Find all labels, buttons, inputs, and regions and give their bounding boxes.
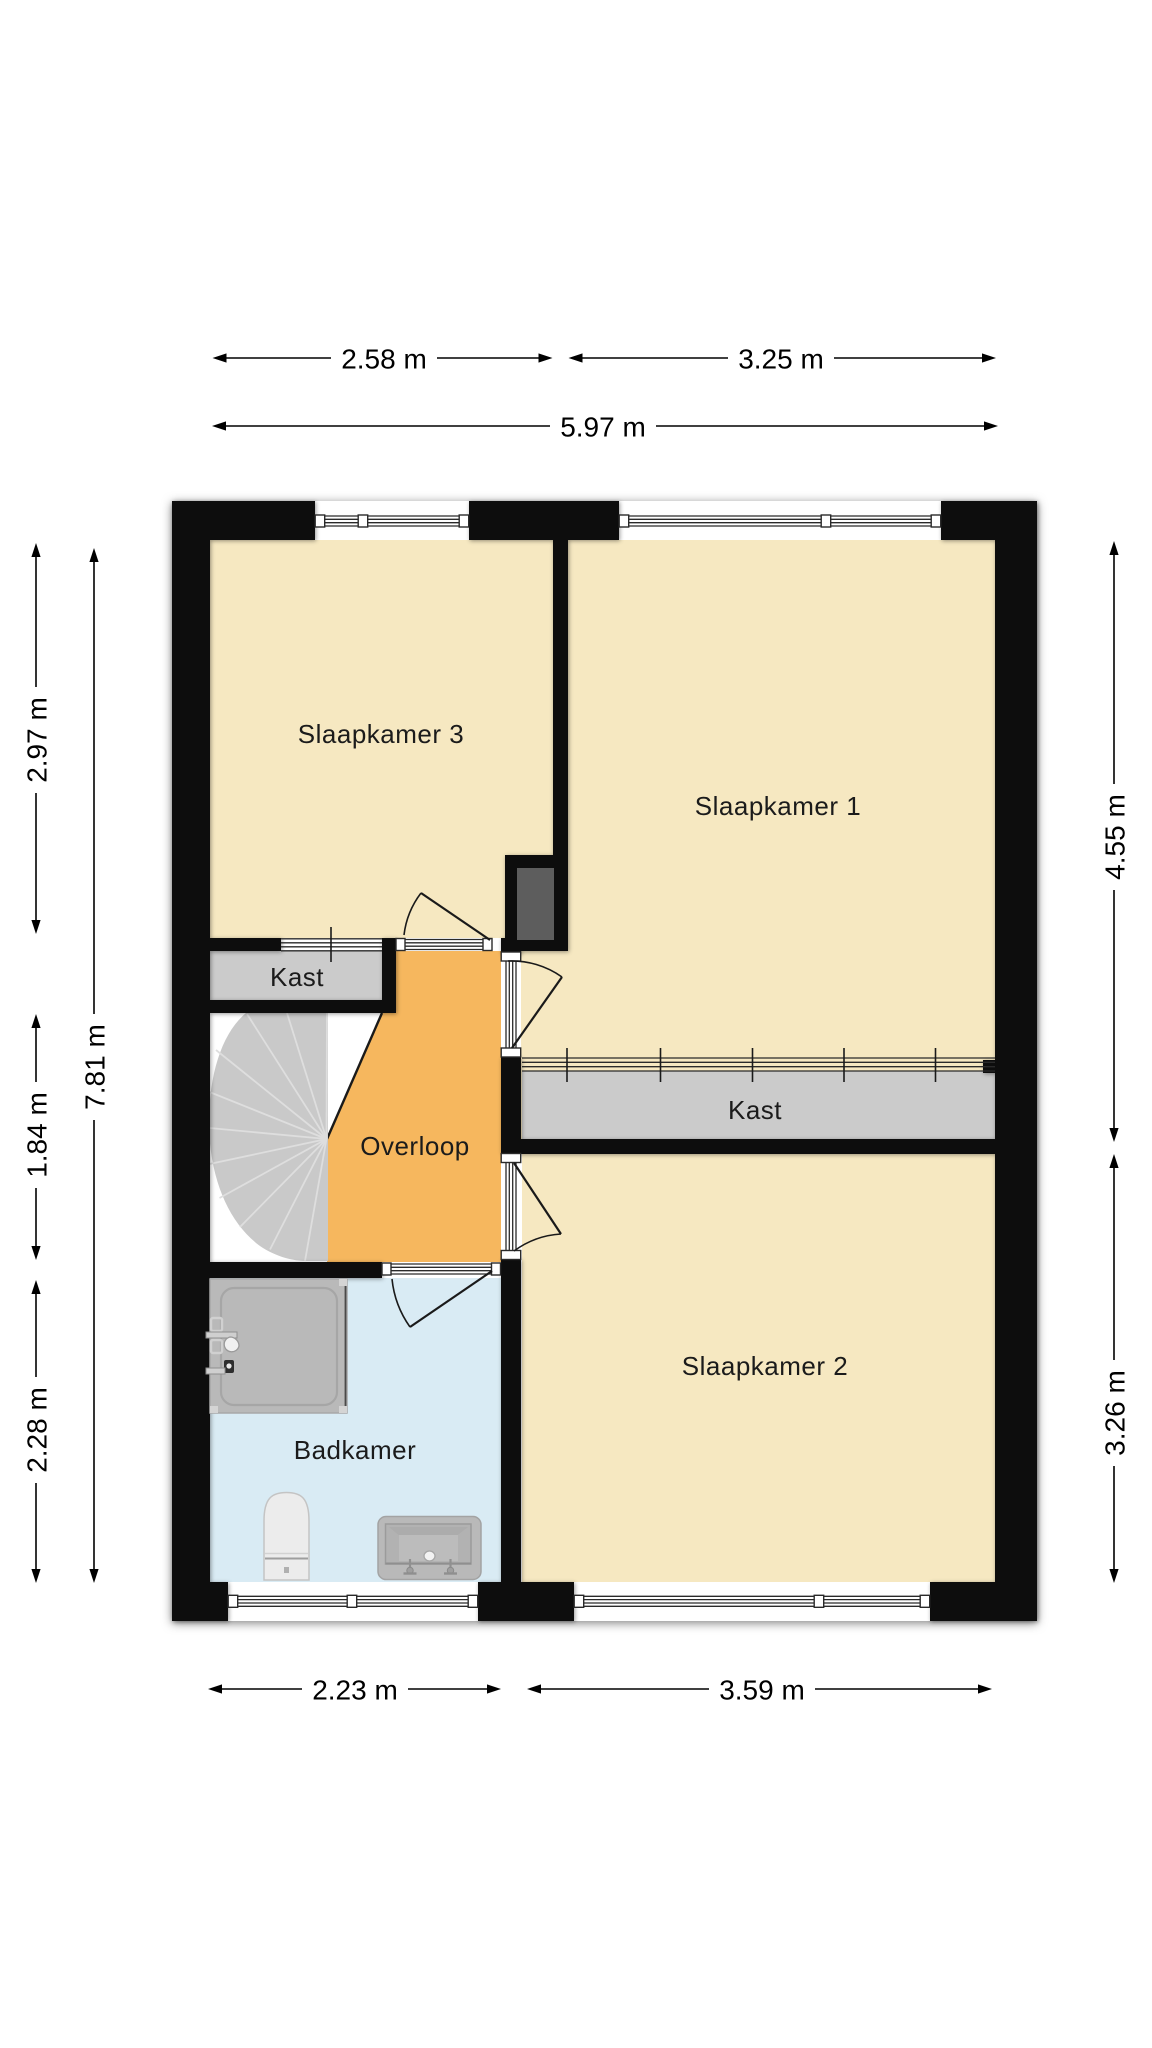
svg-text:7.81 m: 7.81 m — [80, 1024, 111, 1110]
svg-text:5.97 m: 5.97 m — [560, 412, 646, 443]
svg-text:2.97 m: 2.97 m — [22, 697, 53, 783]
svg-text:Kast: Kast — [728, 1095, 782, 1125]
svg-text:Slaapkamer 1: Slaapkamer 1 — [695, 791, 861, 821]
svg-text:3.26 m: 3.26 m — [1100, 1370, 1131, 1456]
svg-text:3.25 m: 3.25 m — [738, 344, 824, 375]
svg-text:Badkamer: Badkamer — [294, 1435, 417, 1465]
svg-text:3.59 m: 3.59 m — [719, 1675, 805, 1706]
svg-text:2.58 m: 2.58 m — [341, 344, 427, 375]
svg-text:Kast: Kast — [270, 962, 324, 992]
svg-text:Slaapkamer 3: Slaapkamer 3 — [298, 719, 464, 749]
svg-text:1.84 m: 1.84 m — [22, 1092, 53, 1178]
svg-text:Slaapkamer 2: Slaapkamer 2 — [682, 1351, 848, 1381]
svg-text:4.55 m: 4.55 m — [1100, 794, 1131, 880]
svg-text:2.23 m: 2.23 m — [312, 1675, 398, 1706]
svg-text:2.28 m: 2.28 m — [22, 1387, 53, 1473]
svg-text:Overloop: Overloop — [360, 1131, 470, 1161]
